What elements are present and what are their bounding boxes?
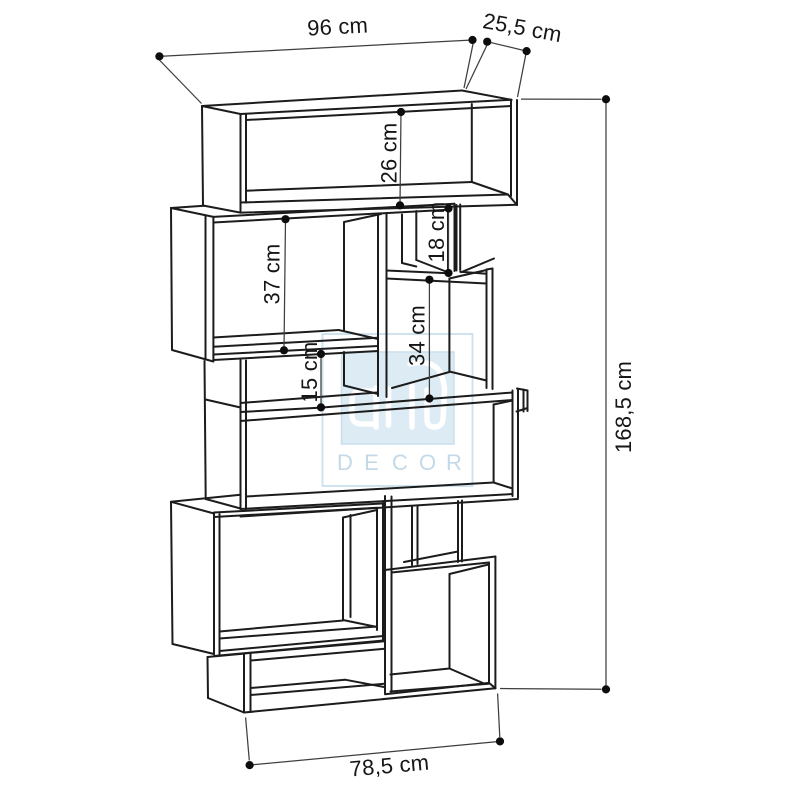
svg-text:168,5 cm: 168,5 cm — [611, 361, 636, 453]
svg-text:26 cm: 26 cm — [377, 123, 402, 184]
svg-text:C: C — [392, 450, 408, 475]
svg-text:D: D — [337, 450, 353, 475]
svg-text:O: O — [419, 450, 436, 475]
svg-text:15 cm: 15 cm — [297, 342, 322, 403]
svg-text:E: E — [364, 450, 379, 475]
svg-text:37 cm: 37 cm — [260, 244, 285, 305]
svg-text:18 cm: 18 cm — [424, 202, 449, 263]
svg-text:96 cm: 96 cm — [307, 12, 369, 40]
svg-text:34 cm: 34 cm — [405, 305, 430, 366]
svg-text:R: R — [446, 450, 462, 475]
